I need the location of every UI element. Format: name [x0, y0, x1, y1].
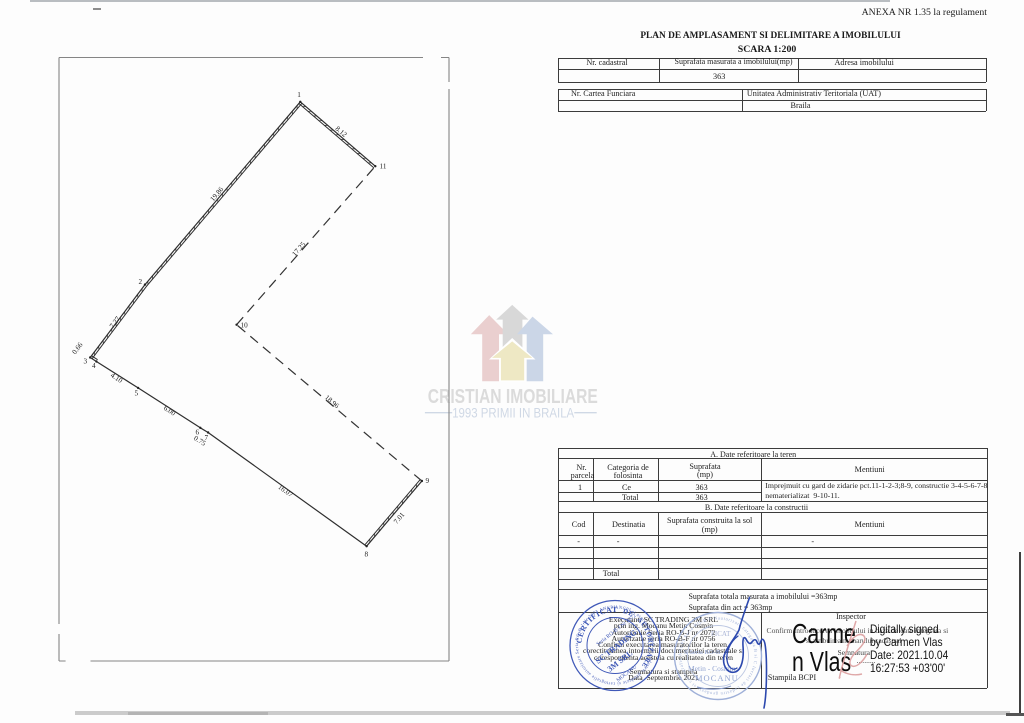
svg-text:MOCANU: MOCANU	[695, 673, 739, 683]
svg-text:autorizare categoria B si C lu: autorizare categoria B si C lucrari de c…	[0, 0, 759, 697]
svg-text:FICAT: FICAT	[711, 630, 731, 638]
svg-text:ANCPI si asociatia lucrari de: ANCPI si asociatia lucrari de cadastru, …	[0, 0, 656, 687]
svg-text:S Seria RO-B: S Seria RO-B	[684, 649, 721, 656]
